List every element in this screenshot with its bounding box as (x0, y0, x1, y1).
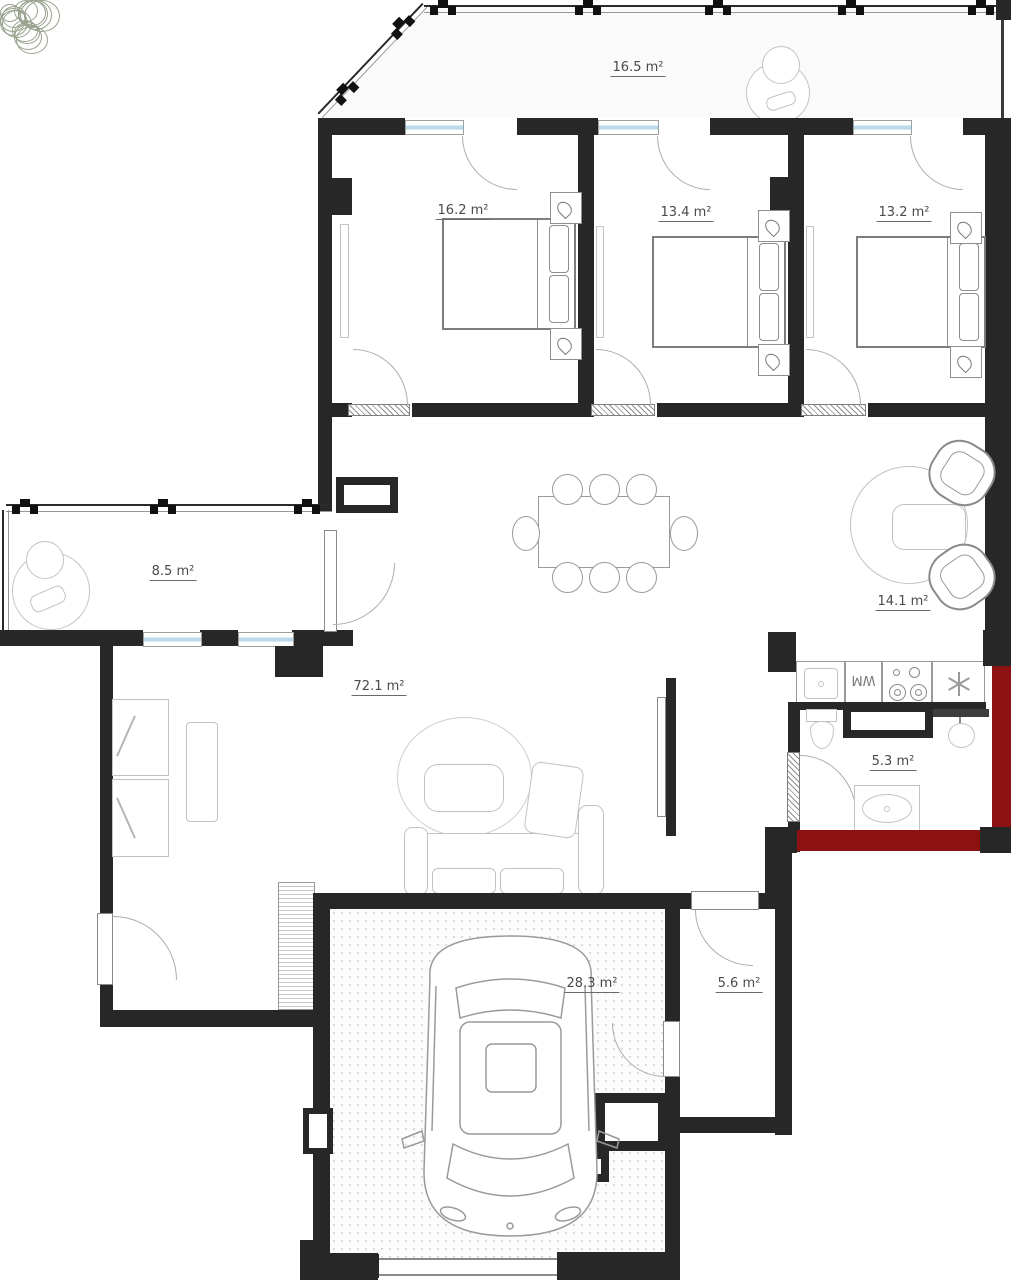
railing-post-icon (838, 0, 864, 15)
storage-door-frame (691, 891, 759, 910)
door-arc (353, 349, 408, 405)
wall-segment (318, 118, 332, 512)
sofa-cushion (500, 868, 564, 894)
shower-head (948, 723, 975, 748)
bed-fold-line (537, 220, 538, 328)
wall-segment (200, 630, 238, 646)
door-arc (695, 910, 753, 966)
door-arc (462, 136, 517, 190)
wall-segment (788, 135, 804, 417)
window (853, 120, 912, 135)
door-arc (800, 755, 857, 817)
armchair-seat (936, 550, 990, 604)
wardrobe (596, 226, 604, 338)
stove (882, 661, 932, 706)
wall-segment (765, 827, 797, 853)
room-label-storage: 5.6 m² (716, 976, 763, 993)
bed-fold-line (747, 238, 748, 346)
wall-segment (313, 909, 330, 1257)
wall-segment (710, 118, 853, 135)
wall-segment (517, 118, 598, 135)
nightstand (758, 344, 790, 376)
wall-segment (292, 630, 353, 646)
wall-segment (557, 1252, 680, 1280)
room-label-kitchen-dining: 14.1 m² (876, 594, 931, 611)
railing-post-icon (150, 499, 176, 514)
room-label-balcony: 8.5 m² (150, 564, 197, 581)
door-arc (657, 136, 710, 190)
door-arc (910, 136, 963, 190)
lamp-icon (954, 219, 975, 240)
radiator (278, 882, 315, 1010)
window (598, 120, 659, 135)
wall-segment (412, 403, 592, 417)
wall-segment (868, 403, 1011, 417)
toilet-bowl (810, 721, 834, 749)
dining-chair (670, 516, 698, 551)
terrace-floor (0, 0, 1011, 120)
bed (652, 236, 786, 348)
door-leaf (787, 752, 800, 822)
dining-chair (552, 562, 583, 593)
shower-rail (933, 709, 989, 717)
tv (657, 697, 666, 817)
sideboard (112, 699, 169, 776)
wall-niche (303, 1108, 333, 1154)
bed-pillow (959, 243, 979, 290)
lamp-icon (954, 353, 975, 374)
accent-wall (992, 664, 1011, 832)
balcony-chair-head (26, 541, 64, 579)
burner (915, 689, 922, 696)
door-leaf (591, 404, 655, 416)
wall-segment (100, 1010, 330, 1027)
dining-chair (589, 562, 620, 593)
duct-shaft (336, 477, 398, 513)
railing-post-icon (575, 0, 601, 15)
railing-post-icon (430, 0, 456, 15)
wall-segment (775, 893, 792, 1135)
window (238, 632, 294, 647)
bed-pillow (549, 225, 569, 272)
dining-chair (626, 474, 657, 505)
garage-storage-door-frame (663, 1021, 680, 1077)
window (405, 120, 464, 135)
room-label-terrace: 16.5 m² (611, 60, 666, 77)
wall-segment (0, 630, 143, 646)
room-label-bathroom: 5.3 m² (870, 754, 917, 771)
wall-segment (768, 632, 796, 672)
wall-segment (578, 135, 594, 417)
garage-door-jamb (373, 1254, 379, 1278)
dining-chair (512, 516, 540, 551)
lamp-icon (554, 199, 575, 220)
lounge-ottoman (892, 504, 966, 550)
nightstand (550, 192, 582, 224)
dining-chair (626, 562, 657, 593)
burner (909, 667, 920, 678)
door-arc (806, 349, 861, 405)
balcony-railing-side (2, 510, 9, 634)
sideboard (112, 779, 169, 857)
bed (442, 218, 576, 330)
bed-pillow (759, 243, 779, 290)
bed-pillow (959, 293, 979, 340)
wall-segment (788, 702, 800, 754)
sofa-arm (578, 805, 604, 895)
washbasin-drain (884, 806, 890, 812)
window (143, 632, 202, 647)
kitchen-sink-drain (818, 681, 824, 687)
door-arc (333, 563, 395, 625)
wall-segment (275, 646, 323, 677)
wall-segment (665, 1133, 680, 1253)
wall-segment (657, 403, 802, 417)
dining-chair (552, 474, 583, 505)
wall-segment (983, 630, 1011, 666)
wall-segment (996, 0, 1011, 20)
nightstand (950, 212, 982, 244)
door-leaf (801, 404, 866, 416)
door-leaf (348, 404, 410, 416)
room-label-bedroom-1: 16.2 m² (436, 203, 491, 220)
railing-post-icon (968, 0, 994, 15)
room-label-garage: 28.3 m² (565, 976, 620, 993)
plant-icon (0, 174, 58, 228)
wall-segment (313, 893, 693, 909)
lamp-icon (762, 351, 783, 372)
wall-segment (330, 1253, 378, 1280)
bed (856, 236, 986, 348)
wall-segment (332, 178, 352, 215)
entry-door-frame (97, 913, 113, 985)
fridge (932, 661, 985, 706)
accent-wall (797, 830, 987, 851)
wall-segment (765, 851, 792, 895)
lamp-icon (554, 335, 575, 356)
railing-post-icon (705, 0, 731, 15)
sofa-arm (404, 827, 428, 895)
plant-icon (0, 148, 42, 174)
railing-post-icon (12, 499, 38, 514)
wardrobe (340, 224, 349, 338)
garage-door (378, 1258, 558, 1276)
sofa-chaise (523, 761, 585, 840)
sofa-cushion (432, 868, 496, 894)
console-table (186, 722, 218, 822)
nightstand (950, 346, 982, 378)
bed-pillow (549, 275, 569, 322)
railing-post-icon (294, 499, 320, 514)
wall-segment (665, 1117, 792, 1133)
burner (894, 689, 901, 696)
room-label-bedroom-3: 13.2 m² (877, 205, 932, 222)
door-arc (596, 349, 651, 405)
hanging-chair-head (762, 46, 800, 84)
kitchen-peninsula (843, 704, 933, 738)
tv-stand (424, 764, 504, 812)
armchair-seat (935, 447, 988, 500)
dining-table (538, 496, 670, 568)
nightstand (550, 328, 582, 360)
wall-segment (300, 1240, 330, 1280)
washing-machine-label: WM (847, 672, 880, 687)
wall-segment (980, 827, 1011, 853)
room-label-living-room: 72.1 m² (352, 679, 407, 696)
wall-segment (665, 905, 680, 1023)
door-arc (113, 916, 177, 980)
terrace-edge-line (1001, 8, 1004, 118)
wardrobe (806, 226, 814, 338)
tv-partition-wall (666, 678, 676, 836)
garage-door-jamb (557, 1254, 563, 1278)
wall-segment (770, 177, 788, 213)
car (398, 926, 623, 1246)
bed-fold-line (947, 238, 948, 346)
dining-chair (589, 474, 620, 505)
bed-pillow (759, 293, 779, 340)
lamp-icon (762, 217, 783, 238)
floor-plan: WM (0, 0, 1011, 1280)
nightstand (758, 210, 790, 242)
plant-icon (0, 90, 64, 148)
room-label-bedroom-2: 13.4 m² (659, 205, 714, 222)
burner (893, 669, 900, 676)
